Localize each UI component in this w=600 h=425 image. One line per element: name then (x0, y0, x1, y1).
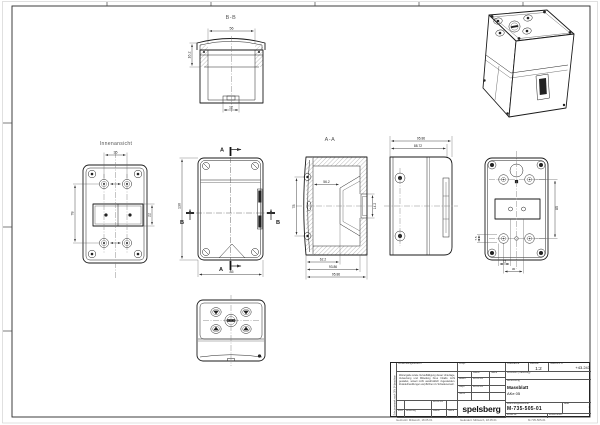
norm-label-cell: Norm (458, 393, 472, 401)
view-innenansicht: Innenansicht 35 78 22 (71, 141, 155, 278)
dim-label: 12 (229, 105, 233, 109)
dim-label: 78 (292, 205, 296, 209)
urspr-cell: Urspr. (458, 363, 506, 372)
dim-label: 93.86 (329, 265, 337, 269)
zeichnungsnummer-cell: Zeichnungsnummer M-735-505-01 (506, 403, 563, 414)
benennung-cell: Benennung Massblatt AKe 05 (506, 380, 591, 403)
gepr-label-cell: Gepr. (458, 386, 472, 393)
view-section-aa: A-A 78 56.2 14.2 (292, 137, 377, 280)
dim-label: 56 (230, 27, 234, 31)
dim-label: 56.2 (323, 180, 330, 184)
oberflaeche-cell: Oberfläche (506, 363, 529, 372)
bearb-label: Bearb. (458, 378, 471, 382)
dim-label: 95.86 (417, 137, 425, 141)
werkstoff-label: Werkstoff (Halbzeug) (506, 372, 591, 376)
gewicht-cell: Gewicht in G +43.243 (549, 363, 591, 372)
cut-a-label: A (219, 267, 223, 273)
back-window (495, 199, 540, 219)
bearb-datum-cell: 18.05.01 (472, 378, 490, 386)
view-front: A A B B 130 85 (178, 147, 281, 277)
norm-label: Norm (458, 393, 471, 397)
massstab-cell: Maßstab 1:2 (529, 363, 549, 372)
name-header: Name (490, 372, 505, 375)
datum-label: Datum (432, 410, 446, 413)
urspr-label: Urspr. (458, 363, 505, 367)
seal-dot (258, 51, 260, 53)
rev-datum-value: 18.05.01 (432, 401, 447, 410)
bearb-label-cell: Bearb. (458, 378, 472, 386)
massstab-value: 1:2 (529, 366, 548, 371)
norm-name-cell (490, 393, 506, 401)
disclaimer-text: Weitergabe sowie Vervielfältigung dieser… (397, 372, 457, 387)
dim-label: 78 (71, 212, 75, 216)
drawing-sheet: B-B 56 16.2 12 (0, 0, 600, 425)
dim-label: 35 (114, 150, 118, 154)
cut-a-label: A (220, 148, 224, 154)
gepr-date: 18.05.01 (472, 386, 489, 389)
rev-zust-value (397, 401, 405, 410)
zeichnungsnummer-value: M-735-505-01 (506, 407, 562, 413)
blatt-value: 1 (563, 407, 591, 410)
latch (258, 189, 263, 229)
dim-label: 14.2 (373, 203, 377, 210)
gepr-label: Gepr. (458, 386, 471, 390)
blatt-cell: Blatt 1 (563, 403, 591, 414)
spelsberg-logo: spelsberg (462, 404, 500, 414)
datum-label-cell: Datum (432, 410, 447, 418)
dim-label: 62.2 (320, 258, 327, 262)
zust-label: Zust. (397, 410, 404, 413)
print-stamp-mid: Geändert: Mittwoch, 18.05.01 (460, 418, 497, 422)
view-isometric (483, 10, 574, 117)
title-block: Schutzvermerk nach DIN 34 beachten Verwe… (390, 362, 590, 417)
inner-view-label: Innenansicht (100, 141, 133, 147)
corner-boss-icons (88, 170, 142, 258)
latch-side (443, 178, 449, 237)
dim-label: 95.86 (332, 273, 340, 277)
disclaimer-cell: Weitergabe sowie Vervielfältigung dieser… (397, 372, 458, 401)
verwendungsbereich-cell: Verwendungsbereich (397, 363, 458, 372)
print-stamp-left: Gedruckt: Mittwoch, 18.05.01 (396, 418, 432, 422)
norm-datum-cell (472, 393, 490, 401)
cutting-line-b: B B (180, 210, 280, 227)
view-bottom (197, 295, 265, 366)
logo-cell: spelsberg (458, 401, 506, 418)
seal-dot (203, 51, 205, 53)
bearb-name-cell (490, 378, 506, 386)
rev-aenderung-value (405, 401, 432, 410)
ersetzt-durch-label: Ersetzt durch: (548, 414, 591, 417)
dim-label: 22 (148, 213, 152, 217)
dim-label: 30 (512, 267, 516, 271)
section-bb-label: B-B (226, 15, 237, 21)
wall-mark-triangle (219, 244, 245, 258)
section-aa-label: A-A (325, 137, 336, 143)
gepr-name-cell (490, 386, 506, 393)
gewicht-value: +43.243 (549, 366, 591, 370)
view-side: 95.86 88.72 (384, 136, 458, 255)
view-back: 85 7.5 12 30 (474, 151, 559, 274)
gepr-datum-cell: 18.05.01 (472, 386, 490, 393)
dim-label: 88.72 (414, 144, 422, 148)
oberflaeche-label: Oberfläche (506, 363, 528, 367)
aenderung-label: Änderung (405, 410, 431, 413)
name-label-cell: Name (447, 410, 458, 418)
bearb-date: 18.05.01 (472, 378, 489, 381)
dim-label: 130 (178, 203, 182, 209)
werkstoff-cell: Werkstoff (Halbzeug) (506, 372, 591, 380)
bottom-knockout (223, 96, 239, 103)
dim-label: 85 (555, 206, 559, 210)
benennung-value2: AKe 05 (506, 390, 591, 396)
name-label: Name (447, 410, 457, 413)
cut-b-label: B (276, 220, 280, 226)
cutting-line-a: A A (219, 147, 241, 273)
rev-name-value (447, 401, 458, 410)
rev-date: 18.05.01 (432, 401, 446, 404)
print-stamp-right: M-735-505-01 (528, 418, 546, 422)
dim-label: 16.2 (188, 52, 192, 59)
view-section-bb: B-B 56 16.2 12 (188, 15, 266, 113)
ersetzt-durch-cell: Ersetzt durch: (548, 414, 591, 418)
verwendungsbereich-label: Verwendungsbereich (397, 363, 457, 367)
dim-label: 85 (230, 270, 234, 274)
dim-label: 7.5 (474, 236, 478, 241)
datum-header: Datum (472, 372, 489, 375)
